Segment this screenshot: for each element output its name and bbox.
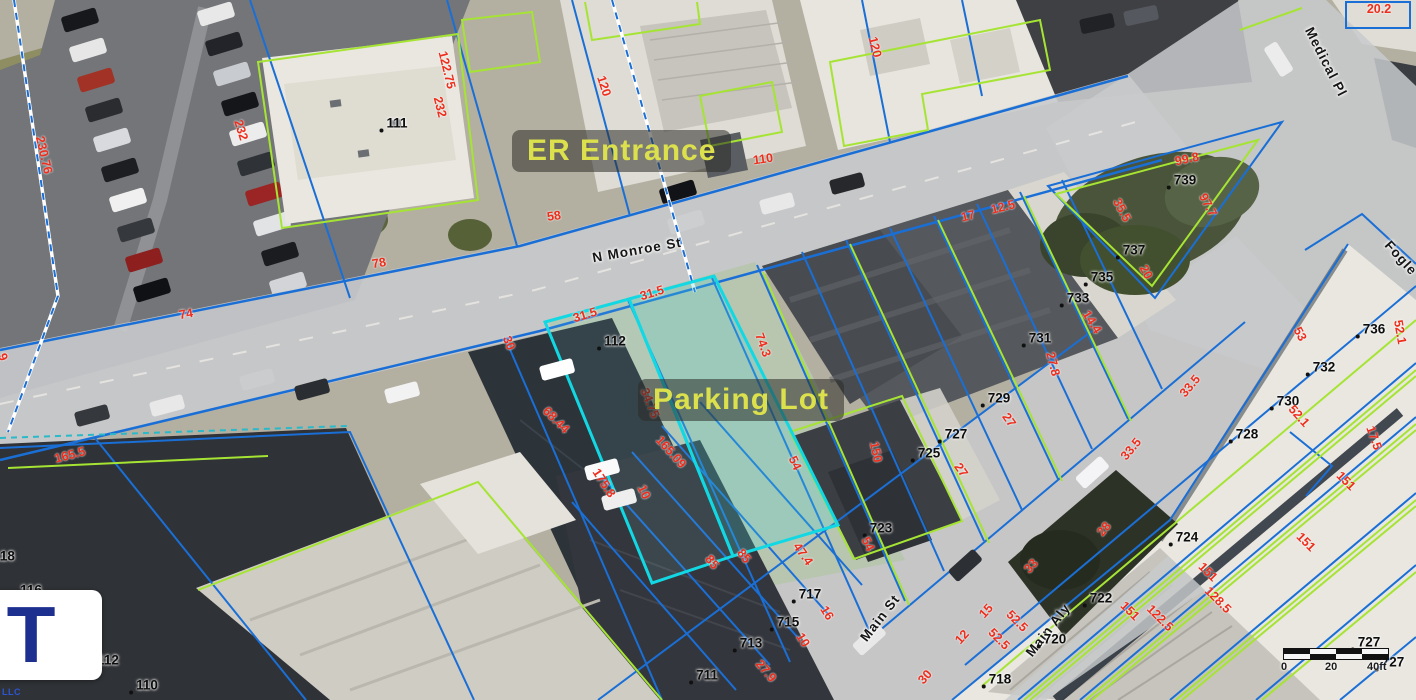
scale-tick-0: 0: [1281, 661, 1287, 673]
company-logo-subtext: LLC: [2, 687, 21, 697]
company-logo: T: [0, 590, 102, 680]
company-logo-letter: T: [7, 595, 56, 675]
aerial-imagery: [0, 0, 1416, 700]
scale-bar-track: [1283, 648, 1389, 660]
scale-bar: 0 20 40ft: [1283, 648, 1389, 674]
map-canvas[interactable]: N Monroe StMain StMain AlyMedical PlFogl…: [0, 0, 1416, 700]
scale-tick-20: 20: [1325, 661, 1337, 673]
scale-bar-ticks: 0 20 40ft: [1283, 660, 1389, 674]
scale-tick-40ft: 40ft: [1367, 661, 1387, 673]
